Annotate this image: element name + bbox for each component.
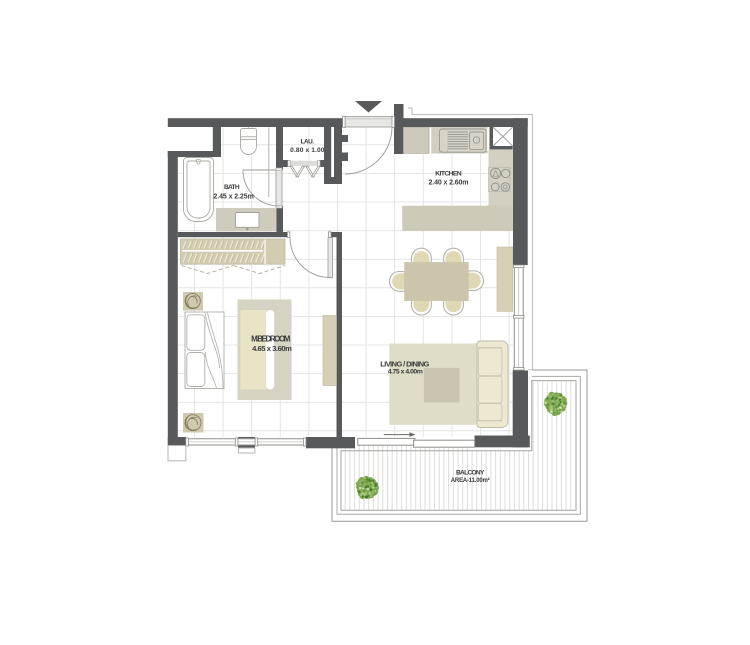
svg-text:KITCHEN: KITCHEN	[435, 171, 461, 178]
svg-text:LAU.: LAU.	[301, 139, 315, 146]
svg-text:4.75 x 4.00m: 4.75 x 4.00m	[388, 369, 423, 376]
svg-text:0.80 x 1.00: 0.80 x 1.00	[290, 147, 325, 154]
svg-text:LIVING / DINING: LIVING / DINING	[380, 360, 429, 369]
svg-text:4.65 x 3.60m: 4.65 x 3.60m	[252, 344, 292, 353]
svg-text:BATH: BATH	[224, 184, 240, 191]
svg-text:BALCONY: BALCONY	[456, 470, 485, 477]
svg-text:AREA-11.00m²: AREA-11.00m²	[451, 477, 490, 484]
svg-text:M.BEDROOM: M.BEDROOM	[251, 335, 291, 344]
svg-text:2.45 x 2.25m: 2.45 x 2.25m	[213, 193, 253, 200]
svg-text:2.40 x 2.60m: 2.40 x 2.60m	[429, 180, 469, 187]
